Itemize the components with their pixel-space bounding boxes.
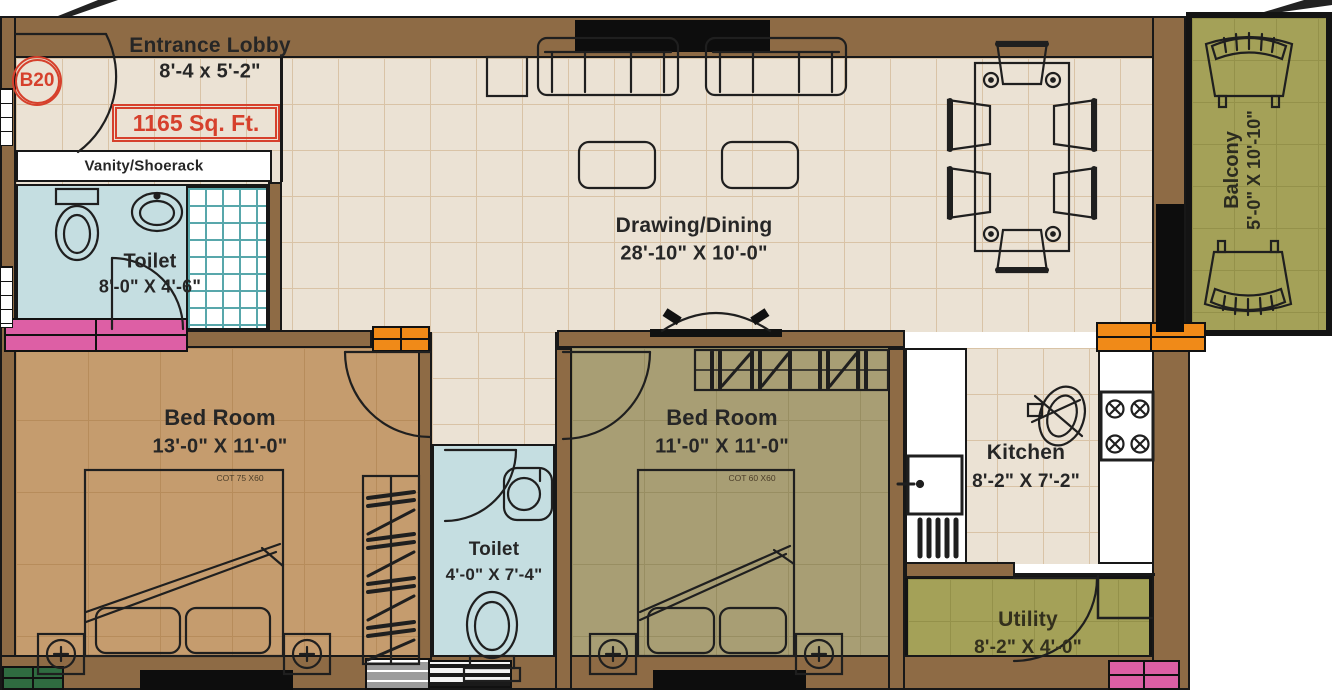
bedroom2-name: Bed Room [666,405,778,431]
coffee-table1-icon [579,142,655,188]
sofa1-icon [538,38,678,95]
balcony-dimensions: 5'-0" X 10'-10" [1244,110,1265,230]
toilet1-wc-icon [56,189,98,260]
toilet2-wc-icon [464,592,520,681]
balcony-chair-top-icon [1206,33,1292,107]
lobby-dimensions: 8'-4 x 5'-2" [159,61,260,84]
bedroom1-name: Bed Room [164,405,276,431]
balcony-chair-bottom-icon [1205,241,1291,315]
bedroom2-door-icon [563,352,650,439]
bedroom2-cot-label: COT 60 X60 [728,473,775,483]
dining-set-icon [948,42,1096,272]
toilet1-sink-icon [132,193,182,231]
unit-number: B20 [15,59,60,104]
balcony-name: Balcony [1221,110,1244,230]
bed1-nightstands-icon [38,634,330,674]
bedroom1-dimensions: 13'-0" X 11'-0" [153,436,288,459]
corner-tick-marks [58,0,1332,16]
unit-number-badge: B20 [12,56,62,106]
bedroom2-dimensions: 11'-0" X 11'-0" [655,436,789,459]
toilet2-name: Toilet [469,539,519,561]
bed1-icon [85,470,283,656]
sofa2-icon [706,38,846,95]
bed2-icon [638,470,794,656]
utility-name: Utility [998,608,1058,632]
toilet1-name: Toilet [123,251,176,274]
floor-plan: Entrance Lobby 8'-4 x 5'-2" B20 1165 Sq.… [0,0,1336,690]
toilet1-dimensions: 8'-0" X 4'-6" [99,277,201,298]
stove-icon [1101,392,1153,460]
kitchen-dimensions: 8'-2" X 7'-2" [972,471,1080,493]
drawing-dining-dimensions: 28'-10" X 10'-0" [620,243,767,266]
fridge-icon [898,456,962,514]
tv-unit-icon [650,308,782,337]
bedroom1-door-icon [345,352,430,437]
kitchen-name: Kitchen [987,441,1065,465]
toilet2-dimensions: 4'-0" X 7'-4" [446,565,543,585]
drawing-dining-name: Drawing/Dining [616,214,773,238]
bedroom1-cot-label: COT 75 X60 [216,473,263,483]
kitchen-grill-icon [920,520,956,556]
bedroom1-wardrobe-icon [363,476,419,664]
total-area-badge: 1165 Sq. Ft. [112,104,280,142]
lobby-name: Entrance Lobby [129,34,291,58]
bed2-nightstands-icon [590,634,842,674]
balcony-label: Balcony 5'-0" X 10'-10" [1221,110,1265,230]
vanity-label: Vanity/Shoerack [85,158,204,175]
side-table-icon [487,57,527,96]
bedroom2-wardrobe-icon [695,350,888,390]
coffee-table2-icon [722,142,798,188]
utility-dimensions: 8'-2" X 4'-0" [974,637,1082,659]
